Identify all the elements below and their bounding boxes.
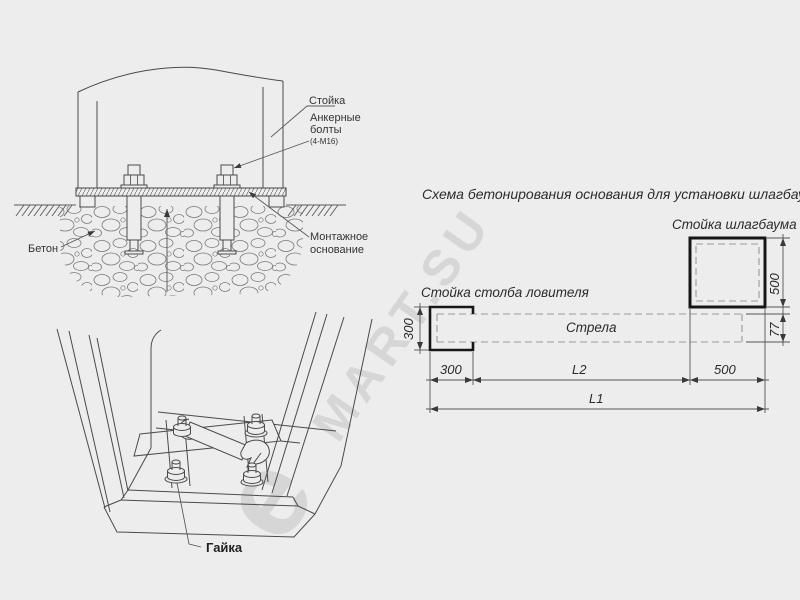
dim-boom-height: 77	[767, 322, 782, 337]
plate-end-left	[80, 196, 95, 207]
concrete-rubble	[60, 206, 303, 297]
label-barrier-post: Стойка шлагбаума	[672, 217, 797, 232]
label-mounting-base-1: Монтажное	[310, 231, 368, 243]
dim-barrier-width: 500	[714, 362, 736, 377]
barrier-post-inner-dashed	[696, 244, 759, 301]
barrier-post-square	[690, 238, 765, 307]
dim-l1: L1	[589, 391, 603, 406]
post-outline	[78, 67, 283, 188]
plan-title: Схема бетонирования основания для устано…	[422, 186, 800, 202]
plate-end-right	[269, 196, 284, 207]
dim-l2: L2	[572, 362, 587, 377]
bolt-top-right	[245, 414, 267, 437]
label-anchor-bolts-spec: (4-М16)	[310, 137, 338, 146]
label-anchor-bolts-1: Анкерные	[310, 112, 361, 124]
leader-arrow-bolts	[234, 163, 241, 168]
dim-catcher-width: 300	[440, 362, 462, 377]
dim-barrier-height: 500	[767, 273, 782, 295]
label-mounting-base-2: основание	[310, 244, 364, 256]
cross-section-view: Стойка Анкерные болты (4-М16) Бетон Монт…	[14, 67, 368, 297]
label-anchor-bolts-2: болты	[310, 124, 342, 136]
drawing-sheet: e MART.SU	[0, 0, 800, 600]
label-nut: Гайка	[206, 540, 243, 555]
label-boom: Стрела	[566, 320, 617, 335]
bolt-bottom-left	[165, 460, 187, 483]
technical-drawing-svg: e MART.SU	[0, 0, 800, 600]
dim-catcher-height: 300	[401, 318, 416, 340]
label-catcher-post: Стойка столба ловителя	[421, 285, 589, 300]
label-concrete: Бетон	[28, 243, 58, 255]
label-post: Стойка	[309, 95, 346, 107]
